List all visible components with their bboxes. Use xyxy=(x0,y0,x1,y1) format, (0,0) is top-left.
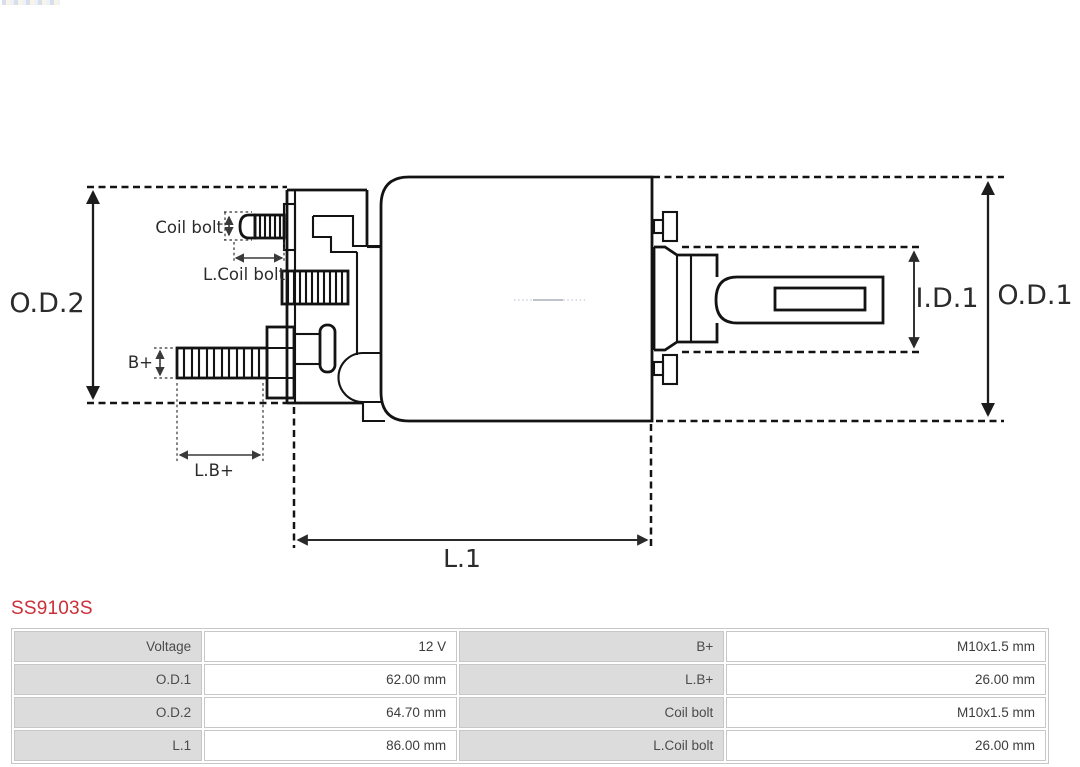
spec-row: Voltage 12 V B+ M10x1.5 mm xyxy=(14,631,1046,662)
spec-label: Coil bolt xyxy=(459,697,724,728)
dimension-coil-bolt: Coil bolt xyxy=(155,212,252,240)
spec-label: L.Coil bolt xyxy=(459,730,724,761)
dimension-l1: L.1 xyxy=(294,407,651,573)
spec-label: L.B+ xyxy=(459,664,724,695)
end-cap-tabs xyxy=(654,212,677,384)
part-number-link[interactable]: SS9103S xyxy=(11,598,93,620)
dimension-label-od2: O.D.2 xyxy=(9,288,84,319)
dimension-l-b-plus: L.B+ xyxy=(177,383,263,480)
spec-value: 12 V xyxy=(204,631,457,662)
dimension-label-l-b-plus: L.B+ xyxy=(194,461,234,480)
b-plus-bolt-shape xyxy=(177,325,335,398)
threaded-bushing xyxy=(282,271,348,304)
spec-label: O.D.2 xyxy=(14,697,202,728)
product-page: { "part_number": "SS9103S", "diagram": {… xyxy=(0,0,1080,767)
spec-value: 86.00 mm xyxy=(204,730,457,761)
dimension-id1: I.D.1 xyxy=(682,247,979,352)
spec-value: 26.00 mm xyxy=(726,730,1046,761)
dimension-b-plus: B+ xyxy=(128,348,174,378)
spec-label: B+ xyxy=(459,631,724,662)
spec-label: L.1 xyxy=(14,730,202,761)
dimension-label-od1: O.D.1 xyxy=(997,280,1072,311)
spec-value: 62.00 mm xyxy=(204,664,457,695)
plunger-shaft xyxy=(716,277,883,323)
spec-row: O.D.2 64.70 mm Coil bolt M10x1.5 mm xyxy=(14,697,1046,728)
spec-value: M10x1.5 mm xyxy=(726,631,1046,662)
spec-table: Voltage 12 V B+ M10x1.5 mm O.D.1 62.00 m… xyxy=(11,628,1049,764)
dimension-label-l1: L.1 xyxy=(443,544,481,573)
dimension-label-id1: I.D.1 xyxy=(915,283,978,314)
dimension-label-b-plus: B+ xyxy=(128,353,153,372)
dimension-label-l-coil-bolt: L.Coil bolt xyxy=(203,265,286,284)
spec-label: O.D.1 xyxy=(14,664,202,695)
spec-value: 64.70 mm xyxy=(204,697,457,728)
terminal-block xyxy=(287,190,385,421)
spec-row: O.D.1 62.00 mm L.B+ 26.00 mm xyxy=(14,664,1046,695)
solenoid-technical-drawing: O.D.2 O.D.1 I.D.1 Coil bolt L.Coil bolt … xyxy=(0,0,1080,592)
solenoid-body xyxy=(381,177,652,421)
dimension-label-coil-bolt: Coil bolt xyxy=(155,218,223,237)
spec-value: M10x1.5 mm xyxy=(726,697,1046,728)
spec-label: Voltage xyxy=(14,631,202,662)
spec-row: L.1 86.00 mm L.Coil bolt 26.00 mm xyxy=(14,730,1046,761)
spec-value: 26.00 mm xyxy=(726,664,1046,695)
flange xyxy=(654,247,717,350)
dimension-l-coil-bolt: L.Coil bolt xyxy=(203,242,286,284)
